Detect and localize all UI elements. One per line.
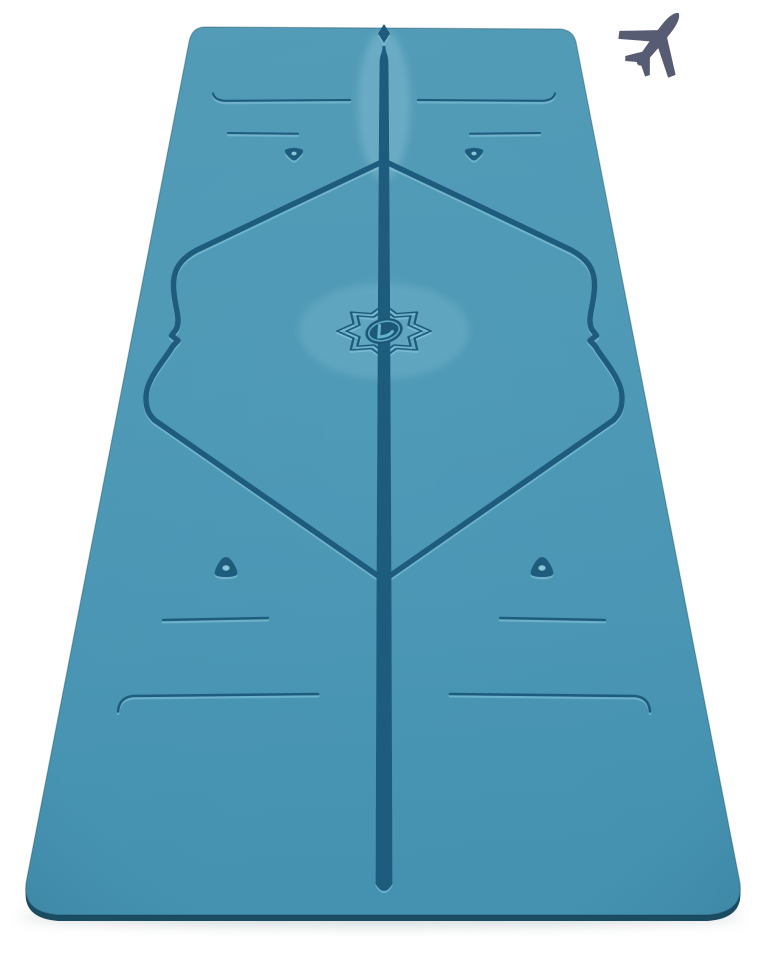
yoga-mat xyxy=(26,24,741,915)
airplane-icon xyxy=(607,0,707,91)
product-photo xyxy=(0,0,761,955)
product-photo-canvas xyxy=(0,0,761,955)
